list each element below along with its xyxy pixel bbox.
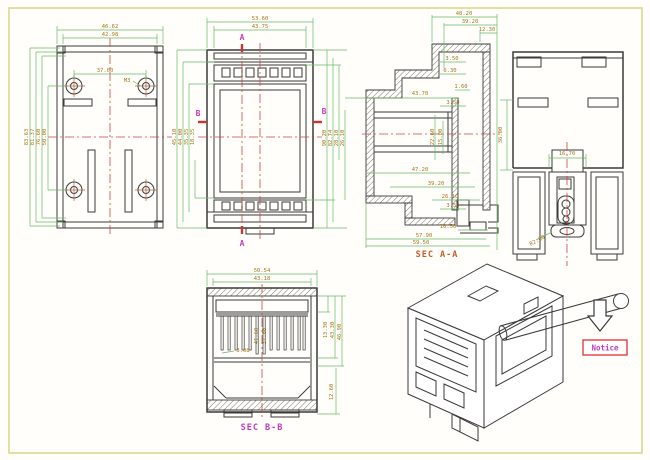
cad-canvas: 46.62 42.98 37.00 M3 83.63 81.37 76.60 5… bbox=[0, 0, 650, 460]
notice-label: Notice bbox=[591, 344, 619, 353]
section-bb-outer-dim: 50.54 bbox=[254, 268, 271, 274]
din-clip-body bbox=[549, 172, 586, 225]
section-aa-bottom-dim: 26.10 bbox=[442, 194, 459, 200]
bottom-view-dim-lines bbox=[30, 26, 163, 226]
section-bb-center-dim: 37.60 bbox=[262, 328, 268, 345]
section-aa-depth-dim: 43.70 bbox=[412, 91, 429, 97]
section-aa-bottom-dim: 10.50 bbox=[440, 224, 457, 230]
bottom-view-hole-span-dim: 37.00 bbox=[97, 68, 114, 74]
section-aa-top-dim: 39.20 bbox=[462, 19, 479, 25]
section-b-marker-left: B bbox=[196, 109, 201, 118]
din-clip-foot bbox=[551, 225, 584, 237]
down-arrow-icon bbox=[588, 300, 612, 331]
section-b-marker-right: B bbox=[322, 107, 327, 116]
section-aa-bottom-dim: 3.50 bbox=[446, 203, 459, 209]
iso-enclosure bbox=[408, 264, 563, 441]
drawing-sheet: 46.62 42.98 37.00 M3 83.63 81.37 76.60 5… bbox=[0, 0, 650, 460]
thread-size-label: M3 bbox=[124, 78, 131, 84]
section-aa-bottom-dim: 57.90 bbox=[416, 233, 433, 239]
section-aa-step-wall bbox=[405, 203, 412, 218]
front-view-left-dim: 18.35 bbox=[190, 129, 196, 146]
section-a-marker-top: A bbox=[240, 33, 245, 42]
section-aa-bottom-dim: 47.20 bbox=[412, 167, 429, 173]
section-aa-right-wall bbox=[483, 52, 490, 210]
side-view-radius-dim: R2.00 bbox=[529, 235, 546, 248]
front-view-inner-width-dim: 43.75 bbox=[252, 24, 269, 30]
front-view-outer-width-dim: 53.60 bbox=[252, 16, 269, 22]
section-bb-foot-dim: 12.60 bbox=[329, 384, 335, 401]
section-aa-step-dim: 3.50 bbox=[445, 56, 458, 62]
section-aa-label: SEC A-A bbox=[416, 250, 459, 260]
section-aa-step-dim: 1.60 bbox=[454, 84, 467, 90]
side-view-body-dim: 36.00 bbox=[498, 127, 504, 144]
section-bb-inner-dim: 43.18 bbox=[254, 276, 271, 282]
section-bb-label: SEC B-B bbox=[241, 423, 284, 433]
bottom-view: 46.62 42.98 37.00 M3 83.63 81.37 76.60 5… bbox=[24, 24, 172, 237]
section-bb-right-dim: 46.90 bbox=[337, 324, 343, 341]
section-aa-bottom-wall bbox=[366, 196, 412, 203]
section-bb-right-dim: 43.30 bbox=[330, 322, 336, 339]
section-bb-view: 50.54 43.18 41.60 37.60 3.08 13.30 43.30… bbox=[207, 268, 346, 433]
section-bb-pin-dim: 3.08 bbox=[236, 348, 249, 354]
section-bb-center-dim: 41.60 bbox=[254, 328, 260, 345]
bottom-view-outer-width-dim: 46.62 bbox=[102, 24, 119, 30]
section-aa-top-wall bbox=[366, 44, 490, 98]
side-view: 36.00 16.70 R2.00 bbox=[498, 52, 623, 266]
section-aa-mid-dim: 15.00 bbox=[438, 129, 444, 146]
section-aa-mid-dim: 22.60 bbox=[430, 129, 436, 146]
bottom-view-inner-width-dim: 42.98 bbox=[102, 32, 119, 38]
section-aa-details bbox=[374, 112, 498, 233]
side-view-clip-width-dim: 16.70 bbox=[559, 151, 576, 157]
section-a-marker-bottom: A bbox=[240, 239, 245, 248]
section-aa-view: 48.20 39.20 12.30 3.50 6.30 1.60 43.70 3… bbox=[345, 11, 500, 260]
section-aa-bottom-dim: 59.50 bbox=[413, 240, 430, 246]
section-bb-right-dim: 13.30 bbox=[323, 322, 329, 339]
section-aa-bottom-dim: 39.20 bbox=[428, 181, 445, 187]
section-aa-left-wall bbox=[366, 98, 374, 196]
iso-view: Notice bbox=[408, 264, 629, 441]
front-view-right-dim: 26.10 bbox=[340, 130, 346, 147]
section-aa-top-dim: 48.20 bbox=[456, 11, 473, 17]
section-aa-step-dim: 3.50 bbox=[446, 100, 459, 106]
section-aa-top-dim: 12.30 bbox=[479, 27, 496, 33]
bottom-view-left-dim: 50.00 bbox=[42, 129, 48, 146]
front-view: A A B B 53.60 43.75 45.10 44.00 35.35 18… bbox=[172, 16, 347, 248]
section-aa-step-dim: 6.30 bbox=[443, 68, 456, 74]
